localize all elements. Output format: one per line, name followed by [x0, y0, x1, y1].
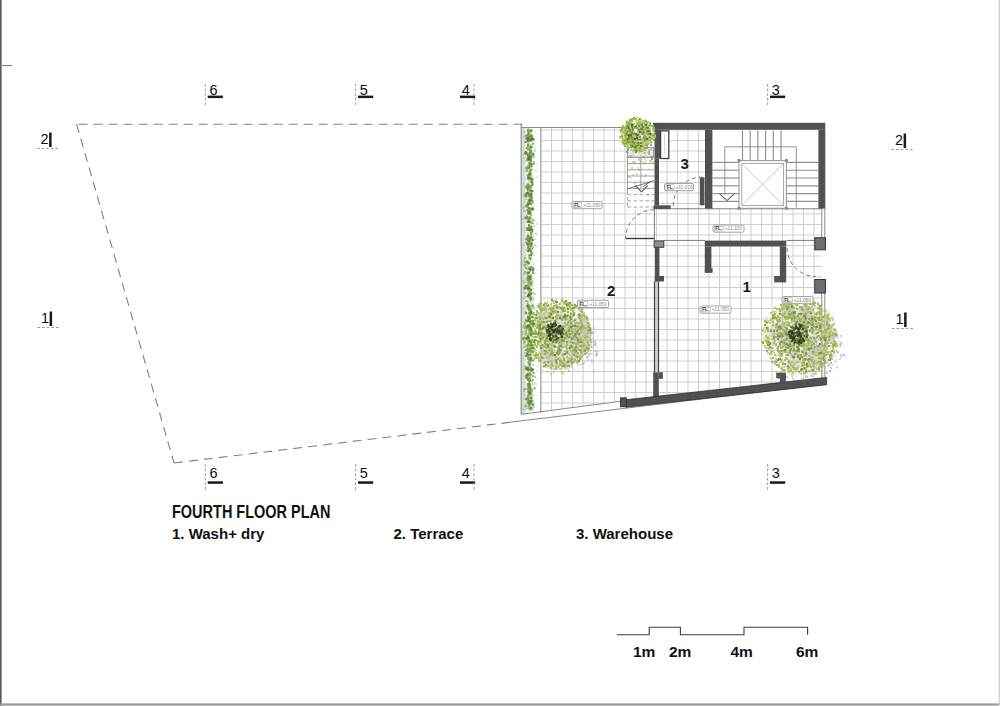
svg-text:3: 3 — [772, 82, 780, 98]
svg-text:3: 3 — [772, 465, 780, 481]
svg-text:+11.050: +11.050 — [589, 302, 606, 307]
svg-text:5: 5 — [360, 82, 368, 98]
svg-text:3. Warehouse: 3. Warehouse — [576, 525, 673, 542]
svg-text:3: 3 — [681, 155, 689, 172]
svg-text:FL.: FL. — [784, 298, 791, 303]
svg-text:FL.: FL. — [667, 185, 674, 190]
svg-text:+11.020: +11.020 — [676, 185, 693, 190]
svg-text:+11.050: +11.050 — [712, 307, 729, 312]
svg-text:FL.: FL. — [574, 203, 581, 208]
svg-text:FL.: FL. — [580, 302, 587, 307]
svg-text:4: 4 — [462, 465, 470, 481]
svg-text:5: 5 — [360, 465, 368, 481]
svg-text:2: 2 — [607, 282, 615, 299]
svg-text:1: 1 — [743, 278, 751, 295]
svg-text:1. Wash+ dry: 1. Wash+ dry — [172, 525, 265, 542]
svg-text:6: 6 — [210, 82, 218, 98]
svg-text:1m: 1m — [633, 643, 655, 660]
svg-text:4m: 4m — [731, 643, 753, 660]
svg-text:FL.: FL. — [715, 226, 722, 231]
svg-text:1: 1 — [896, 311, 904, 327]
svg-text:6m: 6m — [796, 643, 818, 660]
svg-text:2m: 2m — [669, 643, 691, 660]
svg-text:FL.: FL. — [702, 307, 709, 312]
svg-text:6: 6 — [210, 465, 218, 481]
svg-text:FOURTH FLOOR PLAN: FOURTH FLOOR PLAN — [172, 502, 331, 522]
svg-text:+11.100: +11.100 — [725, 226, 742, 231]
svg-text:2: 2 — [895, 132, 903, 148]
svg-text:4: 4 — [462, 82, 470, 98]
svg-text:+11.050: +11.050 — [583, 203, 600, 208]
svg-text:2. Terrace: 2. Terrace — [394, 525, 464, 542]
svg-text:2: 2 — [41, 131, 49, 147]
svg-text:+11.050: +11.050 — [794, 298, 811, 303]
svg-text:1: 1 — [41, 310, 49, 326]
